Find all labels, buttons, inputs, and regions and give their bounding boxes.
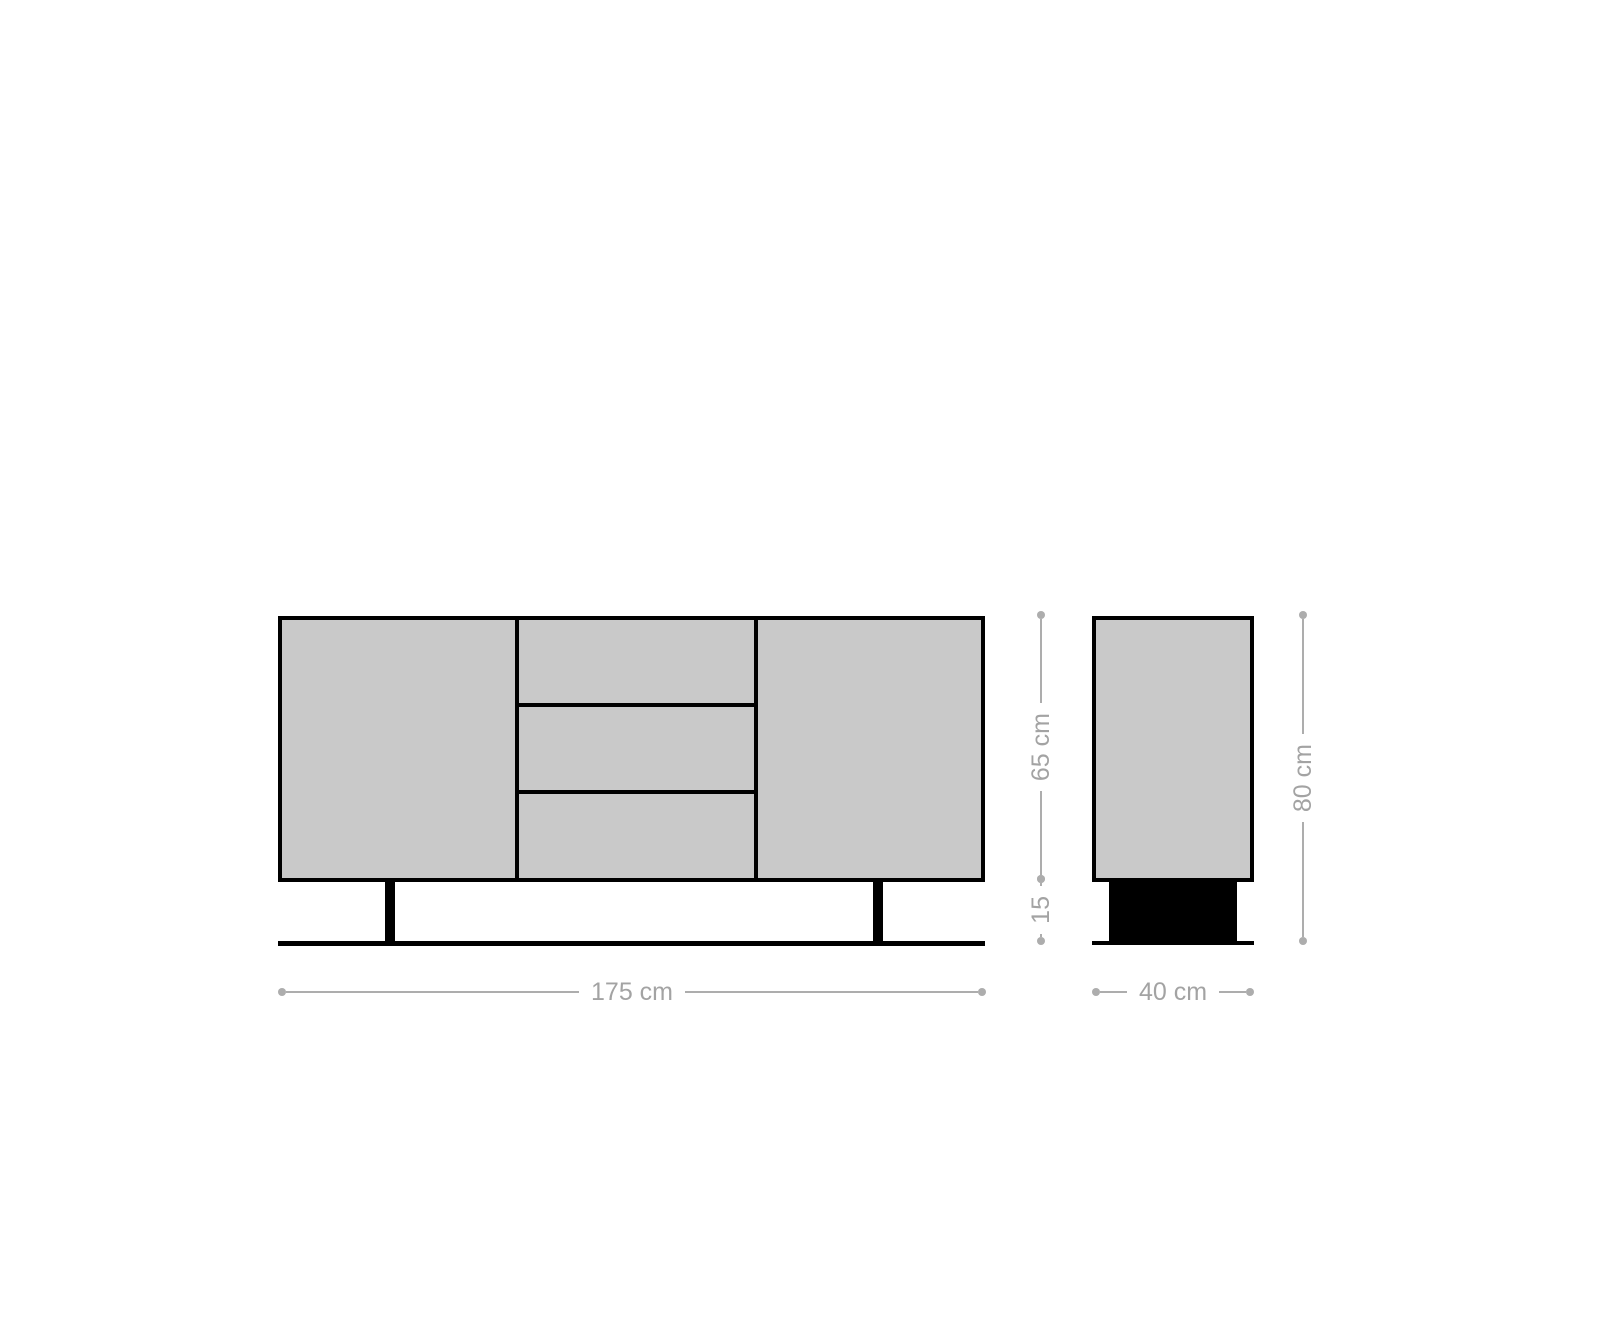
drawer-stack bbox=[519, 620, 758, 878]
front-left-leg bbox=[385, 882, 395, 941]
side-depth-label: 40 cm bbox=[1127, 980, 1219, 1005]
dimension-line-segment bbox=[1302, 822, 1304, 937]
front-width-label: 175 cm bbox=[579, 980, 685, 1005]
dimension-endpoint-dot bbox=[278, 988, 286, 996]
drawer-bottom bbox=[519, 794, 754, 878]
dimension-front-width: 175 cm bbox=[278, 978, 986, 1006]
dimension-endpoint-dot bbox=[1092, 988, 1100, 996]
dimension-side-depth: 40 cm bbox=[1092, 978, 1254, 1006]
furniture-dimension-diagram: 175 cm 65 cm 15 80 cm bbox=[0, 0, 1600, 1333]
base-height-label: 15 bbox=[1029, 886, 1054, 934]
dimension-line-segment bbox=[286, 991, 579, 993]
dimension-endpoint-dot bbox=[978, 988, 986, 996]
dimension-endpoint-dot bbox=[1299, 611, 1307, 619]
dimension-cabinet-height: 65 cm bbox=[1026, 611, 1056, 883]
dimension-endpoint-dot bbox=[1037, 875, 1045, 883]
side-cabinet-body bbox=[1092, 616, 1254, 882]
dimension-line-segment bbox=[1219, 991, 1246, 993]
dimension-line-segment bbox=[1040, 791, 1042, 875]
side-floor-line bbox=[1092, 941, 1254, 945]
dimension-line-segment bbox=[1302, 619, 1304, 734]
dimension-endpoint-dot bbox=[1037, 611, 1045, 619]
dimension-endpoint-dot bbox=[1037, 937, 1045, 945]
front-floor-line bbox=[278, 941, 985, 946]
dimension-line-segment bbox=[685, 991, 978, 993]
cabinet-height-label: 65 cm bbox=[1029, 703, 1054, 791]
front-cabinet-body bbox=[278, 616, 985, 882]
dimension-endpoint-dot bbox=[1246, 988, 1254, 996]
right-door-panel bbox=[758, 620, 981, 878]
dimension-line-segment bbox=[1100, 991, 1127, 993]
left-door-panel bbox=[282, 620, 519, 878]
dimension-line-segment bbox=[1040, 619, 1042, 703]
drawer-middle bbox=[519, 707, 754, 794]
total-height-label: 80 cm bbox=[1291, 734, 1316, 822]
dimension-base-height: 15 bbox=[1026, 875, 1056, 945]
side-base-plinth bbox=[1109, 882, 1237, 941]
front-right-leg bbox=[873, 882, 883, 941]
dimension-total-height: 80 cm bbox=[1288, 611, 1318, 945]
dimension-endpoint-dot bbox=[1299, 937, 1307, 945]
drawer-top bbox=[519, 620, 754, 707]
